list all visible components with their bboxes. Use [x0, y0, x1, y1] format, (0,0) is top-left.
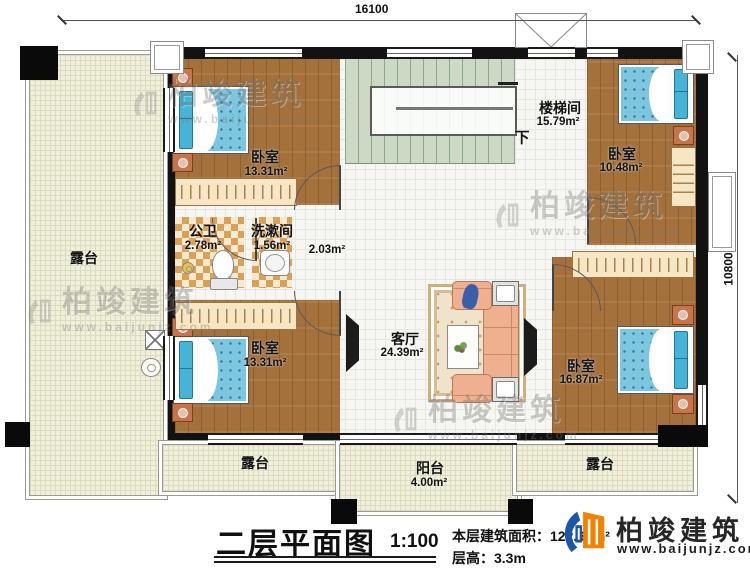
wardrobe: [572, 251, 694, 278]
room-label: 阳台: [416, 458, 444, 478]
window: [163, 336, 175, 400]
table-plant: [453, 340, 469, 354]
room-label: 露台: [70, 248, 98, 268]
floor-plan-page: { "dimensions": { "width_mm": "16100", "…: [0, 0, 750, 572]
stair-handrail: [396, 106, 513, 110]
floor-area-label: 本层建筑面积：: [452, 528, 550, 544]
dimension-height-label: 10800: [722, 252, 736, 285]
bed: [617, 326, 694, 394]
room-area: 13.31m²: [244, 357, 287, 369]
room-label: 客厅: [391, 329, 419, 349]
toilet: [210, 250, 236, 290]
bed-sheet: [649, 329, 667, 391]
nightstand: [672, 394, 694, 414]
bay-window: [150, 41, 184, 74]
floor-drain: [182, 262, 194, 274]
pillow: [179, 368, 193, 399]
dimension-width-label: 16100: [355, 2, 388, 16]
window: [587, 47, 618, 59]
nightstand: [673, 126, 694, 145]
wall-corner: [658, 425, 708, 447]
stair-direction-mark: [498, 82, 518, 85]
room-area: 10.48m²: [600, 162, 643, 174]
nightstand: [172, 153, 193, 172]
floor-height-value: 3.3m: [494, 550, 526, 566]
side-table: [492, 281, 519, 306]
room-label: 公卫: [189, 221, 217, 241]
room-label: 卧室: [251, 338, 279, 358]
room-area: 2.78m²: [185, 240, 221, 252]
room-label: 卧室: [251, 147, 279, 167]
skylight-marker: [515, 13, 587, 48]
title-underline: [214, 556, 436, 558]
dimension-tick: [727, 52, 737, 62]
window: [565, 433, 665, 445]
window: [528, 47, 575, 59]
toilet-bowl: [212, 250, 234, 280]
room-area: 24.39m²: [381, 347, 424, 359]
room-area: 2.03m²: [309, 244, 345, 256]
stair-down-label: 下: [514, 127, 529, 148]
room-label: 楼梯间: [539, 98, 581, 118]
plan-scale: 1:100: [390, 531, 439, 553]
floor-height-label: 层高：: [452, 550, 494, 566]
column: [508, 499, 533, 524]
bay-window: [682, 40, 714, 74]
terrace-left: [30, 55, 163, 495]
bed: [173, 86, 249, 154]
side-table: [492, 377, 519, 402]
dimension-tick: [727, 494, 737, 504]
armchair: [452, 374, 492, 403]
room-area: 15.79m²: [537, 116, 580, 128]
sofa-main: [483, 300, 519, 382]
company-logo-url: www.baijunjz.com: [617, 541, 750, 556]
column: [20, 46, 58, 80]
room-area: 4.00m²: [411, 477, 447, 489]
balcony-door: [340, 433, 517, 445]
wardrobe: [175, 302, 297, 330]
bed: [173, 336, 249, 404]
nightstand: [172, 403, 193, 422]
column: [5, 422, 30, 447]
stair-void: [370, 86, 517, 136]
window: [205, 47, 302, 59]
room-area: 13.31m²: [245, 166, 288, 178]
pillow: [674, 91, 688, 119]
room-label: 卧室: [567, 356, 595, 376]
bay-window: [708, 172, 736, 252]
terrace-drain: [145, 330, 165, 350]
terrace-stool: [141, 358, 161, 377]
bed-sheet: [649, 67, 667, 121]
wardrobe: [175, 178, 297, 206]
toilet-tank: [210, 278, 238, 290]
title-underline: [214, 561, 436, 563]
room-label: 露台: [241, 453, 269, 473]
wardrobe: [671, 147, 696, 207]
window: [387, 47, 472, 59]
dimension-line-right: [737, 55, 738, 503]
nightstand: [672, 305, 694, 325]
company-logo-icon: [560, 506, 610, 556]
room-label: 露台: [586, 454, 614, 474]
pillow: [674, 358, 688, 389]
dimension-line-top: [62, 20, 697, 21]
floor-height-info: 层高：3.3m: [452, 548, 526, 568]
window: [163, 88, 175, 152]
room-label: 卧室: [608, 144, 636, 164]
room-area: 16.87m²: [560, 374, 603, 386]
sink: [260, 250, 290, 276]
room-area: 1.56m²: [254, 240, 290, 252]
room-label: 洗漱间: [251, 221, 293, 241]
pillow: [179, 118, 193, 149]
window: [208, 433, 303, 445]
